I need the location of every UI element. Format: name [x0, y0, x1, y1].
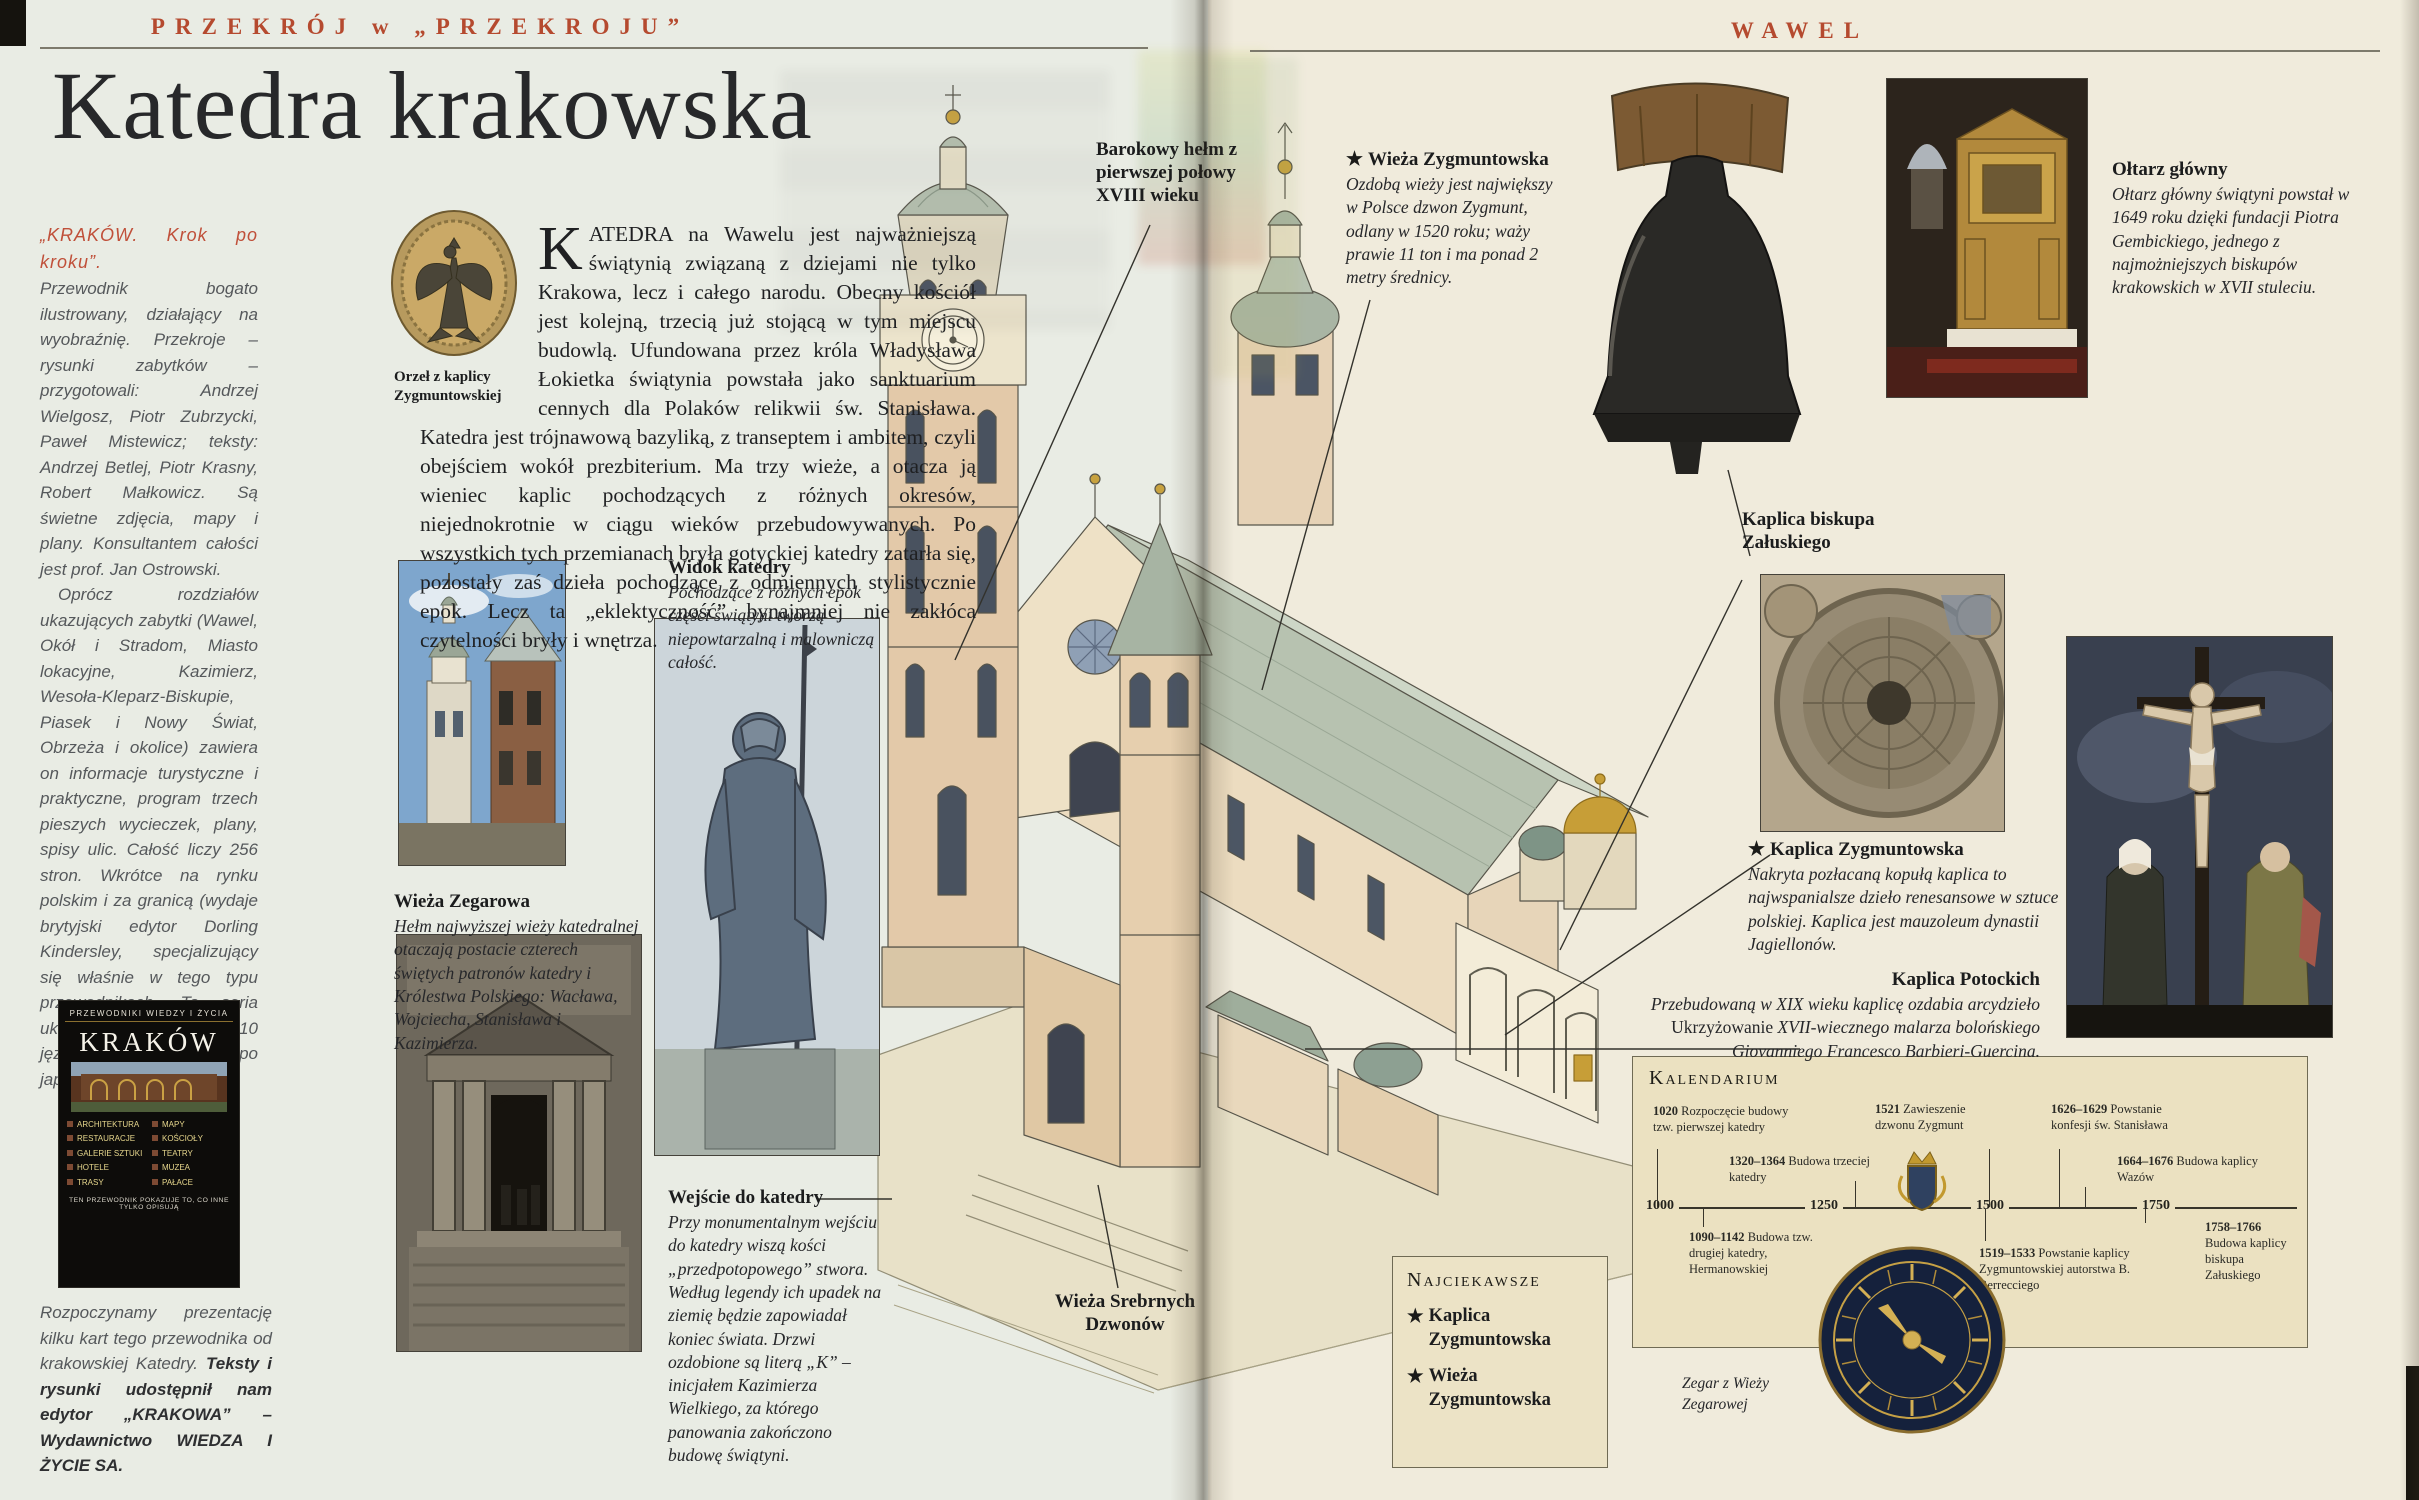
potocki-text-artwork: Ukrzyżowanie [1671, 1017, 1773, 1037]
timeline-tick [1985, 1209, 1986, 1241]
clock-crest-ornament [1896, 1146, 1948, 1233]
potocki-chapel-caption: Kaplica Potockich Przebudowaną w XIX wie… [1640, 968, 2040, 1063]
book-topic: ARCHITEKTURA [67, 1118, 146, 1132]
sigismund-bell-caption-text: Ozdobą wieży jest największy w Polsce dz… [1346, 173, 1558, 289]
timeline-event: 1320–1364 Budowa trzeciej katedry [1729, 1153, 1897, 1185]
sigismund-bell-caption-title: ★Wieża Zygmuntowska [1346, 148, 1558, 171]
intro-dropcap: K [538, 220, 589, 275]
book-topic: RESTAURACJE [67, 1132, 146, 1146]
book-topic: PAŁACE [152, 1176, 231, 1190]
right-header-rule [1250, 50, 2380, 52]
potocki-text-post: XVII-wiecznego malarza bolońskiego Giova… [1732, 1017, 2040, 1060]
event-text: Budowa kaplicy biskupa Załuskiego [2205, 1236, 2287, 1282]
sigismund-bell-photo [1552, 76, 1842, 506]
baroque-spire-caption-text: Barokowy hełm z pierwszej połowy XVIII w… [1096, 138, 1254, 208]
clock-tower-caption: Wieża Zegarowa Hełm najwyższej wieży kat… [394, 890, 640, 1055]
event-year: 1758–1766 [2205, 1220, 2261, 1234]
star-icon: ★ [1748, 839, 1765, 860]
sigismund-chapel-caption: ★Kaplica Zygmuntowska Nakryta pozłacaną … [1748, 838, 2078, 956]
tower-clock-photo [1818, 1246, 2006, 1439]
star-icon: ★ [1346, 149, 1363, 170]
star-icon: ★ [1407, 1365, 1424, 1412]
medallion-caption-text: Orzeł z kaplicy Zygmuntowskiej [394, 368, 534, 406]
timeline-tick [2059, 1149, 2060, 1207]
cathedral-view-caption-title: Widok katedry [668, 556, 880, 579]
axis-year-label: 1000 [1641, 1198, 1679, 1214]
guidebook-cover: PRZEWODNIKI WIEDZY I ŻYCIA KRAKÓW ARCHIT… [58, 1000, 240, 1288]
magazine-spread: PRZEKRÓJ w „PRZEKROJU” Katedra krakowska… [0, 0, 2419, 1500]
event-year: 1521 [1875, 1102, 1900, 1116]
timeline-tick [2145, 1209, 2146, 1223]
timeline-event: 1664–1676 Budowa kaplicy Wazów [2117, 1153, 2259, 1185]
entrance-caption-text: Przy monumentalnym wejściu do katedry wi… [668, 1211, 882, 1467]
book-topic: TRASY [67, 1176, 146, 1190]
chapel-dome-photo [1760, 574, 2005, 832]
timeline-tick [1989, 1149, 1990, 1207]
editorial-note: Rozpoczynamy prezentację kilku kart tego… [40, 1300, 272, 1479]
saint-statue-photo [654, 618, 880, 1156]
event-year: 1664–1676 [2117, 1154, 2173, 1168]
timeline-event: 1020 Rozpoczęcie budowy tzw. pierwszej k… [1653, 1103, 1795, 1135]
book-topic: KOŚCIOŁY [152, 1132, 231, 1146]
crucifixion-painting-photo [2066, 636, 2333, 1038]
event-year: 1320–1364 [1729, 1154, 1785, 1168]
axis-year-label: 1750 [2137, 1198, 2175, 1214]
review-lead: „KRAKÓW. Krok po kroku”. [40, 225, 258, 272]
entrance-caption-title: Wejście do katedry [668, 1186, 882, 1209]
timeline-event: 1521 Zawieszenie dzwonu Zygmunt [1875, 1101, 1997, 1133]
silver-bells-tower-caption-text: Wieża Srebrnych Dzwonów [1036, 1290, 1214, 1336]
cathedral-view-caption-text: Pochodzące z różnych epok części świątyn… [668, 581, 880, 674]
event-year: 1626–1629 [2051, 1102, 2107, 1116]
highlight-label: Kaplica Zygmuntowska [1429, 1304, 1593, 1352]
medallion-caption: Orzeł z kaplicy Zygmuntowskiej [394, 368, 534, 406]
potocki-text-pre: Przebudowaną w XIX wieku kaplicę ozdabia… [1651, 994, 2040, 1014]
silver-bells-tower-caption: Wieża Srebrnych Dzwonów [1036, 1290, 1214, 1336]
book-topic: MAPY [152, 1118, 231, 1132]
left-header-rule [40, 47, 1148, 49]
event-year: 1020 [1653, 1104, 1678, 1118]
zaluski-chapel-caption-text: Kaplica biskupa Załuskiego [1742, 508, 1952, 554]
review-para1: Przewodnik bogato ilustrowany, działając… [40, 279, 258, 579]
potocki-chapel-caption-text: Przebudowaną w XIX wieku kaplicę ozdabia… [1640, 993, 2040, 1063]
page-title: Katedra krakowska [52, 58, 813, 154]
clock-caption: Zegar z Wieży Zegarowej [1682, 1372, 1832, 1415]
sigismund-bell-title-text: Wieża Zygmuntowska [1368, 149, 1549, 170]
book-topic: TEATRY [152, 1147, 231, 1161]
clock-caption-text: Zegar z Wieży Zegarowej [1682, 1374, 1832, 1415]
left-page-masthead: PRZEKRÓJ w „PRZEKROJU” [60, 14, 780, 40]
zaluski-chapel-caption: Kaplica biskupa Załuskiego [1742, 508, 1952, 554]
review-column: „KRAKÓW. Krok po kroku”. Przewodnik boga… [40, 222, 258, 1092]
cathedral-view-caption: Widok katedry Pochodzące z różnych epok … [668, 556, 880, 674]
star-icon: ★ [1407, 1305, 1424, 1352]
kalendarium-title: Kalendarium [1649, 1067, 1780, 1090]
highlight-item: ★Kaplica Zygmuntowska [1407, 1304, 1593, 1352]
book-title: KRAKÓW [65, 1027, 233, 1058]
sigismund-chapel-title-text: Kaplica Zygmuntowska [1770, 839, 1964, 860]
book-topic: HOTELE [67, 1161, 146, 1175]
baroque-spire-caption: Barokowy hełm z pierwszej połowy XVIII w… [1096, 138, 1254, 208]
clock-tower-caption-text: Hełm najwyższej wieży katedralnej otacza… [394, 915, 640, 1055]
highlights-box: Najciekawsze ★Kaplica Zygmuntowska ★Wież… [1392, 1256, 1608, 1468]
highlight-item: ★Wieża Zygmuntowska [1407, 1364, 1593, 1412]
timeline-tick [1855, 1181, 1856, 1207]
book-cover-image [71, 1062, 227, 1112]
entrance-caption: Wejście do katedry Przy monumentalnym we… [668, 1186, 882, 1467]
timeline-tick [1657, 1149, 1658, 1207]
highlight-label: Wieża Zygmuntowska [1429, 1364, 1593, 1412]
review-lead-and-para1: „KRAKÓW. Krok po kroku”. Przewodnik boga… [40, 222, 258, 582]
highlights-title: Najciekawsze [1407, 1269, 1593, 1292]
timeline-tick [1703, 1209, 1704, 1227]
high-altar-caption-text: Ołtarz główny świątyni powstał w 1649 ro… [2112, 183, 2384, 299]
axis-year-label: 1250 [1805, 1198, 1843, 1214]
event-year: 1090–1142 [1689, 1230, 1745, 1244]
book-topics: ARCHITEKTURA RESTAURACJE GALERIE SZTUKI … [65, 1118, 233, 1190]
high-altar-caption-title: Ołtarz główny [2112, 158, 2384, 181]
book-slogan: TEN PRZEWODNIK POKAZUJE TO, CO INNE TYLK… [65, 1197, 233, 1211]
timeline-event: 1758–1766 Budowa kaplicy biskupa Załuski… [2205, 1219, 2301, 1283]
potocki-chapel-caption-title: Kaplica Potockich [1640, 968, 2040, 991]
sigismund-bell-caption: ★Wieża Zygmuntowska Ozdobą wieży jest na… [1346, 148, 1558, 290]
clock-tower-caption-title: Wieża Zegarowa [394, 890, 640, 913]
high-altar-photo [1886, 78, 2088, 398]
right-page-masthead: WAWEL [1500, 18, 2100, 44]
high-altar-caption: Ołtarz główny Ołtarz główny świątyni pow… [2112, 158, 2384, 300]
timeline-axis [1643, 1207, 2297, 1209]
sigismund-chapel-caption-text: Nakryta pozłacaną kopułą kaplica to najw… [1748, 863, 2078, 956]
book-topic: MUZEA [152, 1161, 231, 1175]
sigismund-chapel-caption-title: ★Kaplica Zygmuntowska [1748, 838, 2078, 861]
timeline-tick [2085, 1187, 2086, 1207]
timeline-event: 1626–1629 Powstanie konfesji św. Stanisł… [2051, 1101, 2193, 1133]
timeline-event: 1090–1142 Budowa tzw. drugiej katedry, H… [1689, 1229, 1833, 1277]
book-topic: GALERIE SZTUKI [67, 1147, 146, 1161]
book-series: PRZEWODNIKI WIEDZY I ŻYCIA [65, 1009, 233, 1022]
